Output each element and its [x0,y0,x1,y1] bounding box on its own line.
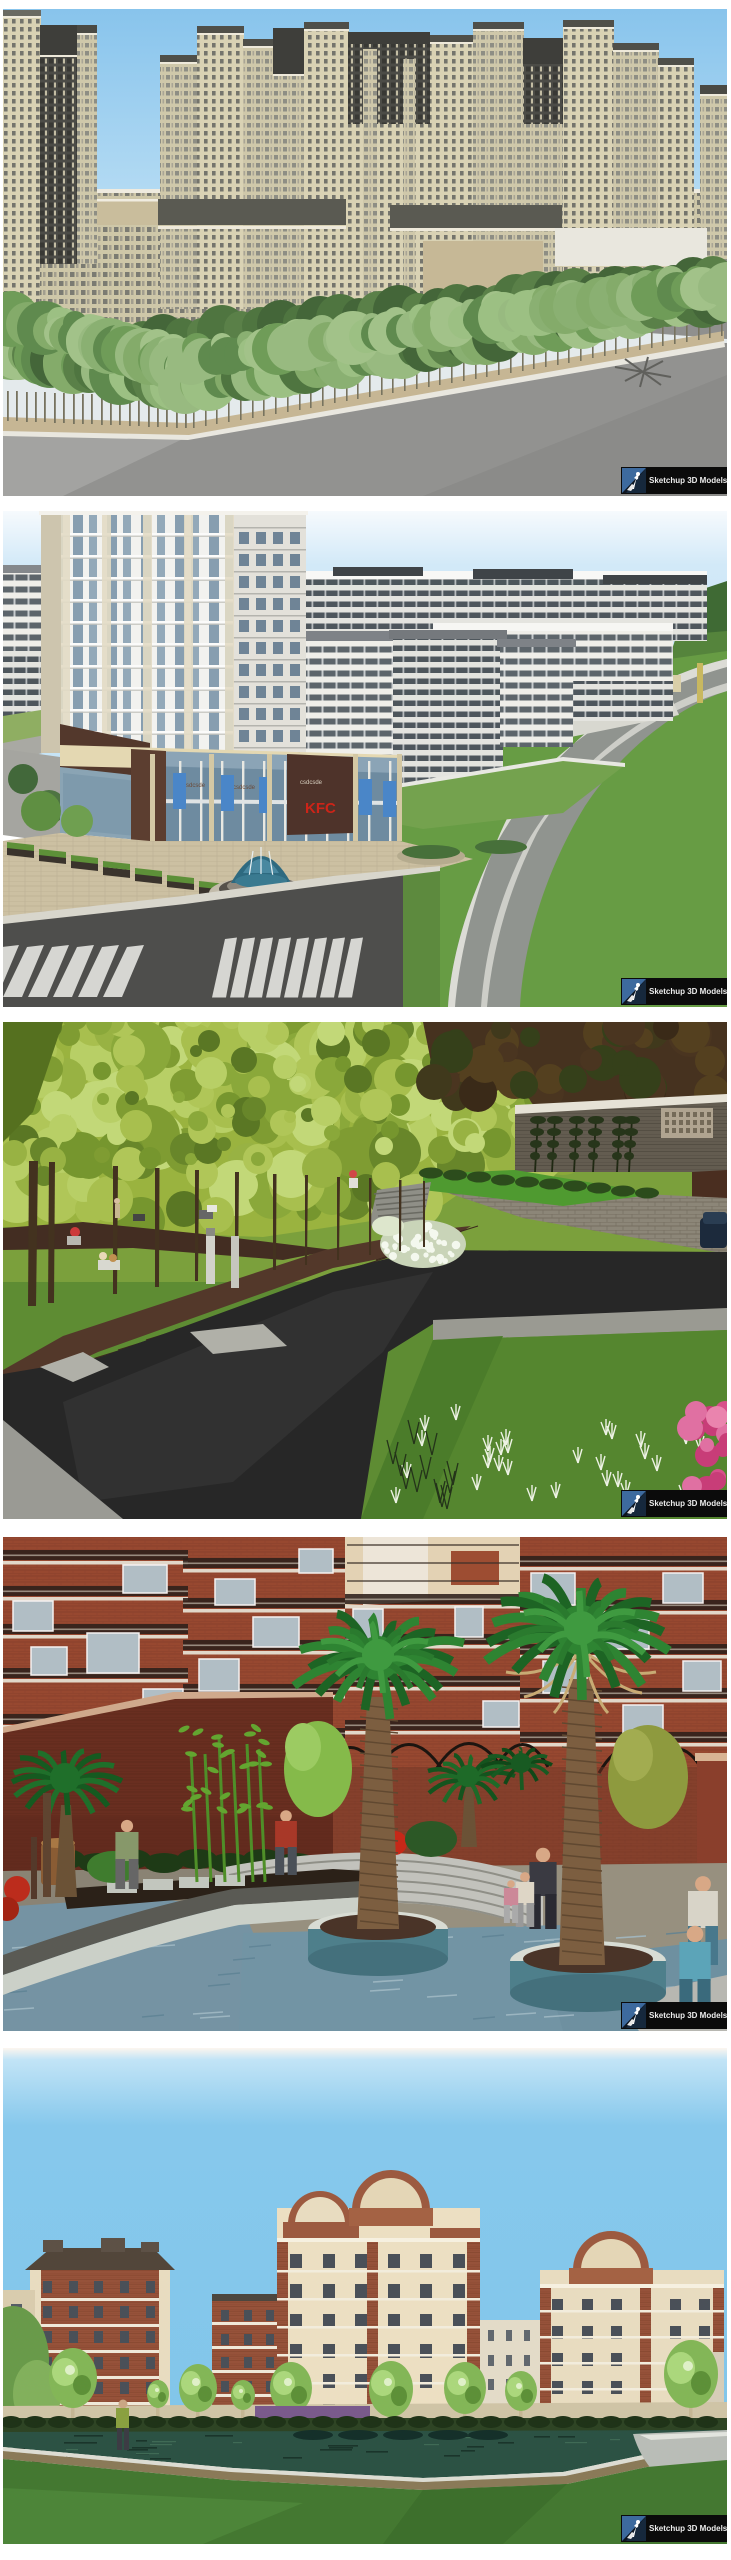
svg-text:csdcsde: csdcsde [183,783,206,789]
svg-text:csdcsde: csdcsde [233,785,256,791]
svg-text:csdcsde: csdcsde [300,780,323,786]
svg-text:KFC: KFC [305,800,336,817]
